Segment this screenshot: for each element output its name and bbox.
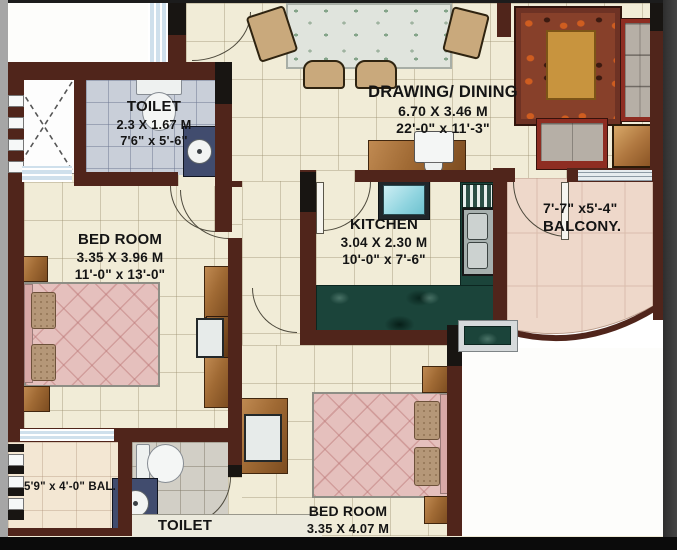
room-dim-ft: 10'-0" x 7'-6" — [318, 252, 450, 269]
wall — [8, 80, 24, 428]
television — [196, 318, 224, 358]
room-dim-ft: 11'-0" x 13'-0" — [58, 267, 182, 284]
room-label-toilet-bottom: TOILET — [140, 517, 230, 536]
frame-edge-right — [663, 0, 677, 550]
room-dim-m: 3.35 X 3.96 M — [58, 250, 182, 267]
side-table — [612, 124, 653, 168]
wall — [8, 62, 232, 80]
window — [8, 95, 24, 107]
wall-column — [228, 465, 242, 477]
nightstand — [422, 366, 449, 393]
wall — [118, 428, 242, 442]
room-dim: 5'9" x 4'-0" BAL. — [24, 481, 116, 493]
wall-column — [650, 3, 663, 31]
wall — [228, 181, 242, 187]
room-name: TOILET — [92, 98, 216, 117]
wall — [118, 442, 132, 536]
pillow — [414, 447, 440, 486]
cooking-range — [378, 178, 430, 220]
wall-column — [8, 510, 24, 520]
wall-column — [215, 62, 232, 104]
frame-edge-top — [0, 0, 677, 3]
wall — [355, 170, 511, 182]
sofa-small — [536, 118, 608, 170]
room-name: BED ROOM — [288, 503, 408, 521]
window — [20, 429, 114, 441]
dining-chair — [303, 60, 345, 89]
room-dim-m: 2.3 X 1.67 M — [92, 117, 216, 133]
room-dim-m: 3.35 X 4.07 M — [288, 521, 408, 537]
room-label-toilet-top: TOILET 2.3 X 1.67 M 7'6" x 5'-6" — [92, 98, 216, 149]
television — [244, 414, 282, 462]
window — [148, 3, 168, 62]
wall-column — [300, 172, 316, 212]
room-name: BED ROOM — [58, 231, 182, 250]
wall-column — [168, 3, 186, 35]
kitchen-sink — [462, 208, 495, 276]
wall-column — [8, 466, 24, 474]
wall — [74, 80, 86, 186]
kitchen-window — [458, 320, 518, 352]
drain-board — [462, 184, 493, 208]
frame-edge-bottom — [0, 537, 677, 550]
room-name: KITCHEN — [318, 216, 450, 235]
wall — [228, 238, 242, 428]
room-name: DRAWING/ DINING — [368, 82, 518, 103]
room-label-balcony-right: 7'-7" x5'-4" BALCONY. — [543, 200, 643, 236]
frame-edge-left — [0, 0, 8, 550]
window — [22, 166, 72, 182]
nightstand — [22, 256, 48, 282]
nightstand — [424, 496, 449, 524]
pillow — [31, 292, 56, 329]
exterior-area — [462, 346, 663, 536]
window — [8, 139, 24, 151]
nightstand — [22, 386, 50, 412]
wall — [653, 182, 663, 320]
window — [578, 170, 652, 181]
wall — [493, 168, 507, 330]
wall — [497, 3, 511, 37]
room-dim-ft: 22'-0" x 11'-3" — [368, 120, 518, 138]
room-dim-m: 3.04 X 2.30 M — [318, 235, 450, 252]
room-label-kitchen: KITCHEN 3.04 X 2.30 M 10'-0" x 7'-6" — [318, 216, 450, 269]
room-label-balcony-left: 5'9" x 4'-0" BAL. — [22, 480, 118, 494]
room-label-drawing-dining: DRAWING/ DINING 6.70 X 3.46 M 22'-0" x 1… — [368, 82, 518, 138]
room-dim-m: 6.70 X 3.46 M — [368, 103, 518, 121]
carpet-rug — [514, 6, 622, 126]
rug-center — [546, 30, 596, 100]
wall-column — [8, 444, 24, 452]
pillow — [31, 344, 56, 381]
exterior-area — [8, 3, 148, 63]
room-dim-ft: 7'-7" x5'-4" — [543, 200, 643, 218]
window — [8, 454, 24, 466]
window — [8, 117, 24, 129]
room-dim-ft: 7'6" x 5'-6" — [92, 133, 216, 149]
room-name: TOILET — [140, 517, 230, 536]
wall — [86, 172, 178, 186]
window — [8, 498, 24, 510]
floor-plan: TOILET 2.3 X 1.67 M 7'6" x 5'-6" DRAWING… — [0, 0, 677, 550]
wall — [300, 330, 462, 345]
room-label-bedroom-top: BED ROOM 3.35 X 3.96 M 11'-0" x 13'-0" — [58, 231, 182, 284]
room-name: BALCONY. — [543, 218, 643, 237]
dresser — [204, 266, 230, 318]
dresser — [204, 356, 230, 408]
pillow — [414, 401, 440, 440]
floor-door-patch — [316, 170, 355, 182]
